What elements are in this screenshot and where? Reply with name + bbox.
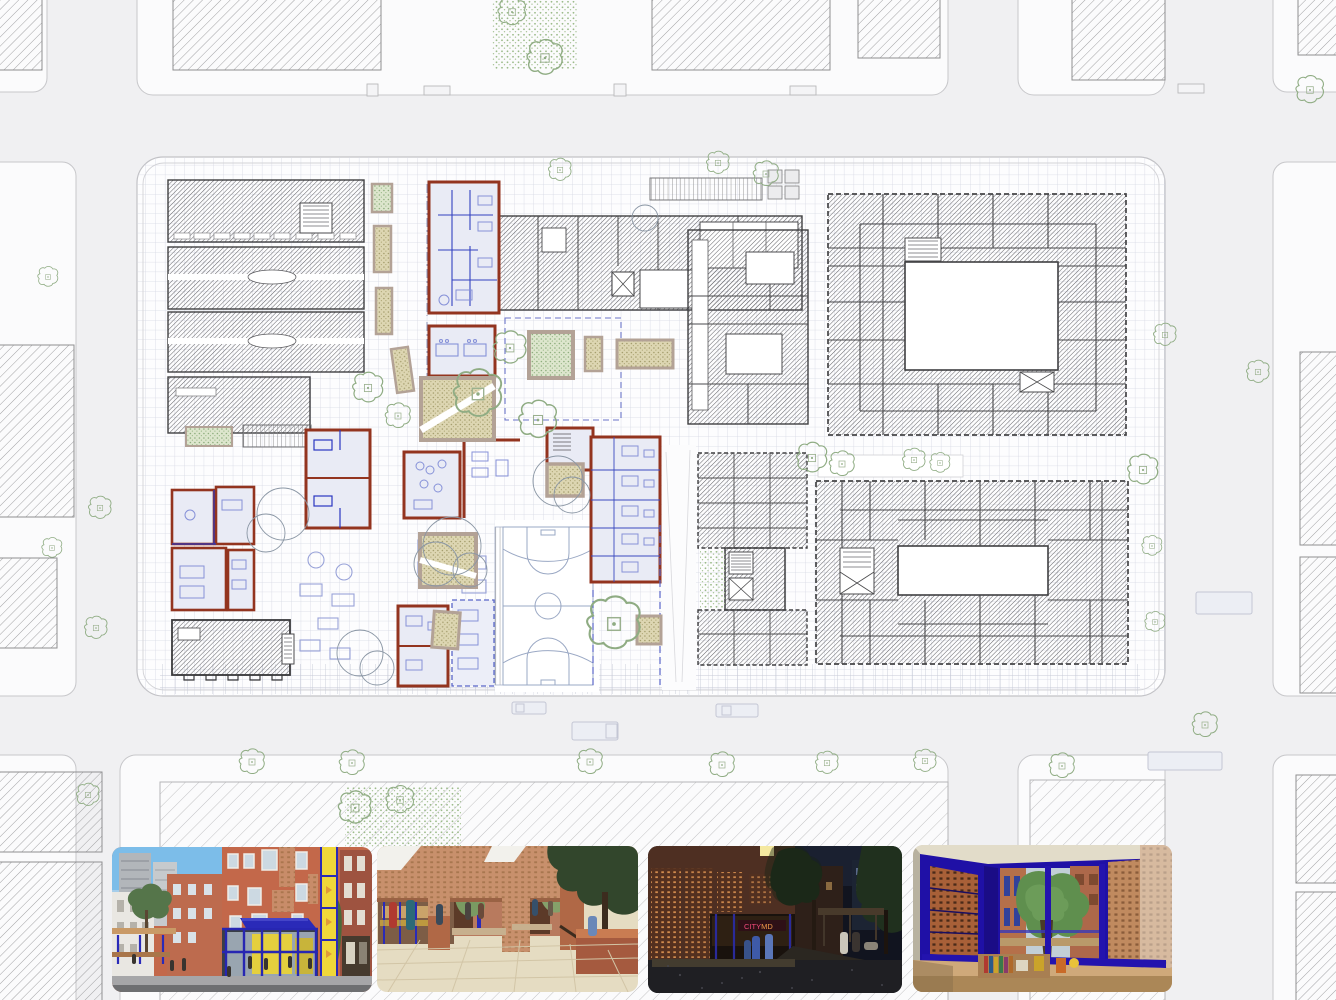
svg-text:CITYMD: CITYMD: [744, 922, 773, 931]
